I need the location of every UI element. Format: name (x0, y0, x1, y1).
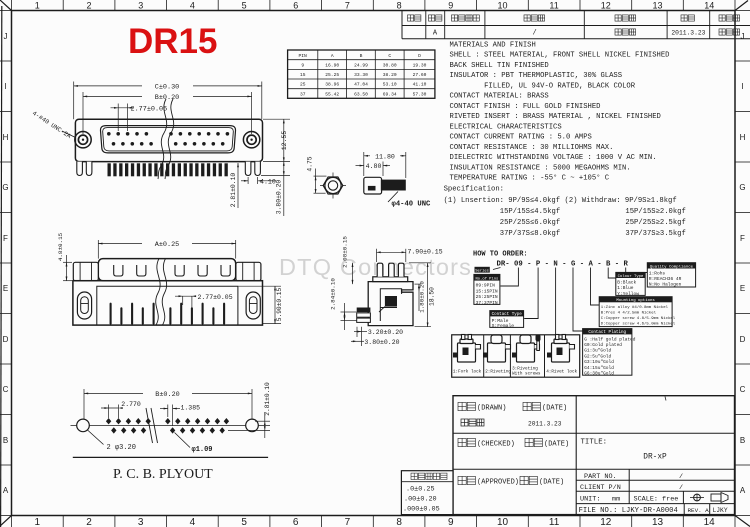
svg-text:11: 11 (549, 1, 558, 11)
svg-text:RIVETED INSERT : BRASS MATERIA: RIVETED INSERT : BRASS MATERIAL , NICKEL… (450, 113, 661, 121)
svg-text:C±0.30: C±0.30 (155, 84, 179, 92)
svg-text:A: A (740, 486, 746, 495)
svg-text:5: 5 (242, 1, 247, 11)
svg-text:G0:Gold plated: G0:Gold plated (584, 342, 622, 348)
svg-text:C:Copper screw 4.8/5.9mm Nicke: C:Copper screw 4.8/5.9mm Nickel (601, 316, 676, 321)
svg-text:A: A (331, 53, 334, 59)
svg-text:N:No Halogen: N:No Halogen (649, 282, 682, 288)
svg-text:E: E (740, 284, 745, 293)
svg-text:J: J (741, 32, 745, 41)
svg-text:(1) Lnsertion: 9P/9S≤4.0kgf: (1) Lnsertion: 9P/9S≤4.0kgf (444, 197, 560, 205)
svg-text:(CHECKED): (CHECKED) (477, 441, 515, 449)
svg-text:DR-xP: DR-xP (643, 454, 667, 462)
svg-text:2: 2 (86, 1, 91, 11)
svg-text:69.34: 69.34 (383, 91, 397, 97)
svg-text:3: 3 (138, 517, 144, 527)
svg-text:H: H (3, 133, 9, 142)
svg-text:25: 25 (300, 82, 306, 88)
svg-text:14: 14 (704, 517, 716, 527)
svg-text:FILE NO.: LJKY-DR-A0004: FILE NO.: LJKY-DR-A0004 (579, 507, 678, 515)
svg-text:HOW TO ORDER:: HOW TO ORDER: (473, 251, 528, 259)
svg-text:P. C. B. PLYOUT: P. C. B. PLYOUT (113, 467, 213, 482)
svg-text:H: H (740, 133, 746, 142)
svg-text:FILLED, UL 94V-O RATED, BLACK: FILLED, UL 94V-O RATED, BLACK COLOR (484, 82, 636, 90)
svg-text:37: 37 (300, 91, 306, 97)
svg-text:1.385: 1.385 (181, 404, 201, 411)
svg-text:16.90: 16.90 (325, 62, 339, 68)
svg-text:3.20±0.20: 3.20±0.20 (368, 329, 403, 336)
svg-text:G :Half gold plated: G :Half gold plated (584, 336, 636, 342)
svg-text:PIN: PIN (299, 53, 308, 59)
svg-text:.000±0.05: .000±0.05 (403, 506, 440, 514)
svg-text:C: C (3, 385, 9, 394)
svg-text:2.770: 2.770 (121, 401, 141, 408)
svg-text:A±0.25: A±0.25 (155, 241, 179, 249)
svg-text:12.55: 12.55 (281, 131, 288, 151)
svg-text:LJKY: LJKY (713, 507, 728, 514)
svg-text:4.8±0.15: 4.8±0.15 (57, 232, 64, 261)
svg-text:11.80: 11.80 (375, 153, 395, 160)
svg-text:UNIT:: UNIT: (580, 495, 600, 503)
svg-text:10: 10 (497, 517, 509, 527)
svg-text:Specification:: Specification: (444, 186, 504, 194)
svg-text:G3:10u″Gold: G3:10u″Gold (584, 359, 614, 365)
svg-text:8: 8 (396, 517, 402, 527)
svg-text:2 φ3.20: 2 φ3.20 (107, 444, 136, 452)
svg-text:G2:5u″Gold: G2:5u″Gold (584, 353, 611, 359)
svg-text:G: G (2, 183, 8, 192)
svg-text:G4:15u″Gold: G4:15u″Gold (584, 365, 614, 371)
svg-text:BACK SHELL TIN FINISHED: BACK SHELL TIN FINISHED (450, 62, 549, 70)
svg-text:B:Pres 4 4/2.5mm Nickel: B:Pres 4 4/2.5mm Nickel (601, 310, 657, 315)
svg-text:5: 5 (241, 517, 247, 527)
svg-text:J: J (4, 32, 8, 41)
svg-text:7: 7 (345, 517, 351, 527)
svg-text:DR15: DR15 (128, 22, 217, 61)
svg-text:B±0.20: B±0.20 (155, 391, 179, 399)
svg-text:13: 13 (652, 1, 662, 11)
svg-text:63.50: 63.50 (354, 91, 368, 97)
svg-text:A: A (3, 486, 9, 495)
svg-text:9: 9 (448, 1, 453, 11)
svg-text:TITLE:: TITLE: (581, 439, 608, 447)
svg-text:MATERIALS AND FINISH: MATERIALS AND FINISH (450, 41, 536, 49)
svg-text:REV. A: REV. A (688, 507, 710, 514)
svg-text:PART NO.: PART NO. (584, 473, 617, 481)
svg-text:27.60: 27.60 (413, 72, 427, 78)
svg-text:25P/25S≤6.0kgf: 25P/25S≤6.0kgf (500, 219, 560, 227)
svg-text:C: C (740, 385, 746, 394)
svg-text:8: 8 (397, 1, 402, 11)
svg-text:14: 14 (704, 1, 714, 11)
svg-text:SCALE: free: SCALE: free (634, 495, 679, 503)
svg-text:2: 2 (86, 517, 92, 527)
svg-text:1:Fork lock: 1:Fork lock (453, 370, 482, 375)
svg-text:mm: mm (612, 495, 620, 503)
svg-text:13: 13 (652, 517, 664, 527)
svg-text:2:Riveting: 2:Riveting (485, 370, 511, 375)
svg-text:(DATE): (DATE) (539, 479, 564, 487)
svg-text:25.25: 25.25 (325, 72, 339, 78)
svg-text:φ4-40 UNC: φ4-40 UNC (392, 201, 432, 209)
svg-text:/: / (532, 30, 536, 38)
svg-text:G6:30u″Gold: G6:30u″Gold (584, 371, 614, 377)
svg-text:33.30: 33.30 (354, 72, 368, 78)
svg-text:B: B (740, 436, 745, 445)
svg-text:4.80: 4.80 (366, 163, 382, 170)
svg-text:1:Rohs: 1:Rohs (649, 270, 666, 276)
svg-text:25:25PIN: 25:25PIN (476, 294, 498, 300)
svg-text:15:15PIN: 15:15PIN (476, 288, 498, 294)
svg-text:09:9PIN: 09:9PIN (476, 283, 496, 289)
svg-text:55.42: 55.42 (325, 91, 339, 97)
svg-text:12: 12 (601, 1, 611, 11)
svg-text:DR- 09 - P - N - G - A - B - R: DR- 09 - P - N - G - A - B - R (497, 261, 629, 269)
svg-text:4.75: 4.75 (307, 156, 314, 171)
svg-text:2.84±0.10: 2.84±0.10 (329, 278, 336, 310)
svg-text:38.20: 38.20 (383, 72, 397, 78)
svg-text:2.08±0.15: 2.08±0.15 (341, 236, 348, 268)
svg-text:SHELL : STEEL MATERIAL, FRONT: SHELL : STEEL MATERIAL, FRONT SHELL NICK… (450, 52, 670, 60)
svg-text:Contact Plating: Contact Plating (588, 330, 626, 335)
svg-text:12: 12 (600, 517, 612, 527)
svg-text:CONTACT RESISTANCE : 30 MILLIO: CONTACT RESISTANCE : 30 MILLIOHMS MAX. (450, 144, 614, 152)
svg-text:11: 11 (549, 517, 560, 527)
svg-text:B:Black: B:Black (617, 280, 636, 286)
svg-text:(DATE): (DATE) (542, 405, 567, 413)
svg-text:B: B (3, 436, 8, 445)
svg-text:4.10: 4.10 (260, 179, 276, 186)
svg-text:B±0.20: B±0.20 (155, 94, 179, 102)
svg-text:37P/37S≥3.5kgf: 37P/37S≥3.5kgf (625, 230, 685, 238)
svg-text:C: C (388, 53, 391, 59)
svg-text:Y:Yellow: Y:Yellow (617, 291, 639, 297)
svg-text:2.77±0.05: 2.77±0.05 (198, 294, 233, 301)
svg-text:2.81±0.10: 2.81±0.10 (230, 173, 237, 208)
svg-text:3: 3 (138, 1, 143, 11)
svg-text:3.80±0.20: 3.80±0.20 (364, 339, 399, 346)
svg-text:38.96: 38.96 (325, 82, 339, 88)
svg-text:41.10: 41.10 (413, 82, 427, 88)
svg-text:24.99: 24.99 (354, 62, 368, 68)
svg-text:2011.3.23: 2011.3.23 (671, 30, 705, 37)
svg-text:D: D (3, 335, 9, 344)
svg-text:G: G (739, 183, 745, 192)
svg-text:10: 10 (497, 1, 507, 11)
svg-text:7: 7 (345, 1, 350, 11)
svg-text:19.30: 19.30 (413, 62, 427, 68)
svg-text:CONTACT CURRENT RATING : 5.0 A: CONTACT CURRENT RATING : 5.0 AMPS (450, 134, 592, 142)
svg-text:ELECTRICAL CHARACTERISTICS: ELECTRICAL CHARACTERISTICS (450, 123, 562, 131)
svg-text:CONTACT MATERIAL: BRASS: CONTACT MATERIAL: BRASS (450, 93, 549, 101)
svg-text:6: 6 (293, 517, 299, 527)
svg-text:Series: Series (475, 268, 489, 273)
svg-text:INSULATION RESISTANCE : 5000 M: INSULATION RESISTANCE : 5000 MEGAOHMS MI… (450, 164, 631, 172)
svg-text:18.50: 18.50 (429, 287, 436, 306)
svg-text:15P/15S≤4.5kgf: 15P/15S≤4.5kgf (500, 208, 560, 216)
svg-text:30.80: 30.80 (383, 62, 397, 68)
svg-text:CONTACT FINISH : FULL GOLD FIN: CONTACT FINISH : FULL GOLD FINISHED (450, 103, 601, 111)
svg-text:2.81±0.10: 2.81±0.10 (264, 382, 271, 416)
svg-text:Colour Type: Colour Type (618, 274, 644, 279)
svg-text:E: E (3, 284, 8, 293)
svg-text:R:REACH36 4R: R:REACH36 4R (649, 276, 682, 282)
svg-text:15P/15S≥2.0kgf: 15P/15S≥2.0kgf (625, 208, 685, 216)
svg-text:(APPROVED): (APPROVED) (477, 479, 519, 487)
svg-text:25P/25S≥2.5kgf: 25P/25S≥2.5kgf (625, 219, 685, 227)
svg-text:P:Male: P:Male (492, 318, 509, 324)
svg-text:D: D (740, 335, 746, 344)
svg-text:/: / (679, 473, 683, 481)
svg-text:1:Zinc alloy #4/0.8mm Nickel: 1:Zinc alloy #4/0.8mm Nickel (601, 305, 669, 310)
svg-text:4: 4 (190, 517, 196, 527)
svg-text:I: I (741, 82, 743, 91)
svg-text:(DATE): (DATE) (544, 441, 569, 449)
svg-text:F: F (740, 234, 745, 243)
svg-text:φ1.09: φ1.09 (192, 446, 213, 454)
svg-text:9: 9 (301, 62, 304, 68)
svg-text:7.90±0.15: 7.90±0.15 (408, 248, 443, 255)
svg-text:/: / (679, 484, 683, 492)
svg-text:B: B (360, 53, 363, 59)
svg-text:F: F (3, 234, 8, 243)
svg-text:37:37PIN: 37:37PIN (476, 300, 498, 306)
svg-text:6: 6 (293, 1, 298, 11)
svg-text:CLIENT P/N: CLIENT P/N (580, 484, 621, 492)
svg-text:Mounting options: Mounting options (616, 298, 655, 303)
svg-text:DIELECTRIC WITHSTANDING VOLTAG: DIELECTRIC WITHSTANDING VOLTAGE : 1000 V… (450, 154, 657, 162)
svg-text:47.04: 47.04 (354, 82, 368, 88)
svg-text:.00±0.20: .00±0.20 (404, 496, 437, 504)
svg-text:TEMPERATURE RATING : -55° C ~: TEMPERATURE RATING : -55° C ~ +105° C (450, 174, 610, 183)
svg-text:No.of Pins: No.of Pins (476, 276, 499, 281)
svg-text:1: 1 (35, 1, 40, 11)
svg-text:.0±0.25: .0±0.25 (406, 486, 435, 494)
svg-text:Contact Type: Contact Type (492, 313, 523, 317)
svg-text:D: D (418, 53, 421, 59)
svg-text:2011.3.23: 2011.3.23 (528, 420, 562, 427)
svg-text:1.80±0.20: 1.80±0.20 (419, 281, 426, 313)
svg-text:INSULATOR : PBT THERMOPLASTIC,: INSULATOR : PBT THERMOPLASTIC, 30% GLASS (450, 72, 623, 80)
svg-text:53.10: 53.10 (383, 82, 397, 88)
svg-text:With screws: With screws (512, 372, 541, 377)
svg-text:2.77±0.05: 2.77±0.05 (131, 106, 168, 114)
svg-text:D:Copper screw 4.6/5.0mm Nicke: D:Copper screw 4.6/5.0mm Nickel (601, 322, 676, 327)
svg-text:(DRAWN): (DRAWN) (477, 405, 506, 413)
svg-text:37P/37S≤8.0kgf: 37P/37S≤8.0kgf (500, 230, 560, 238)
svg-text:I: I (4, 82, 6, 91)
svg-text:S:Female: S:Female (492, 323, 515, 329)
svg-text:Quality Compliance: Quality Compliance (650, 264, 694, 269)
svg-text:4:Rivet lock: 4:Rivet lock (546, 370, 577, 375)
svg-text:G1:3u″Gold: G1:3u″Gold (584, 348, 611, 354)
svg-text:DTQ Connectors: DTQ Connectors (279, 254, 472, 280)
svg-text:57.30: 57.30 (413, 91, 427, 97)
svg-text:(2) Withdraw: 9P/9S≥1.8kgf: (2) Withdraw: 9P/9S≥1.8kgf (565, 197, 677, 205)
svg-text:1:Blue: 1:Blue (617, 285, 634, 291)
svg-text:9: 9 (448, 517, 454, 527)
svg-text:3.80±0.20: 3.80±0.20 (276, 180, 283, 215)
svg-text:15: 15 (300, 72, 306, 78)
svg-text:1: 1 (35, 517, 41, 527)
svg-text:5.90±0.15: 5.90±0.15 (276, 288, 283, 322)
svg-text:4: 4 (190, 1, 195, 11)
